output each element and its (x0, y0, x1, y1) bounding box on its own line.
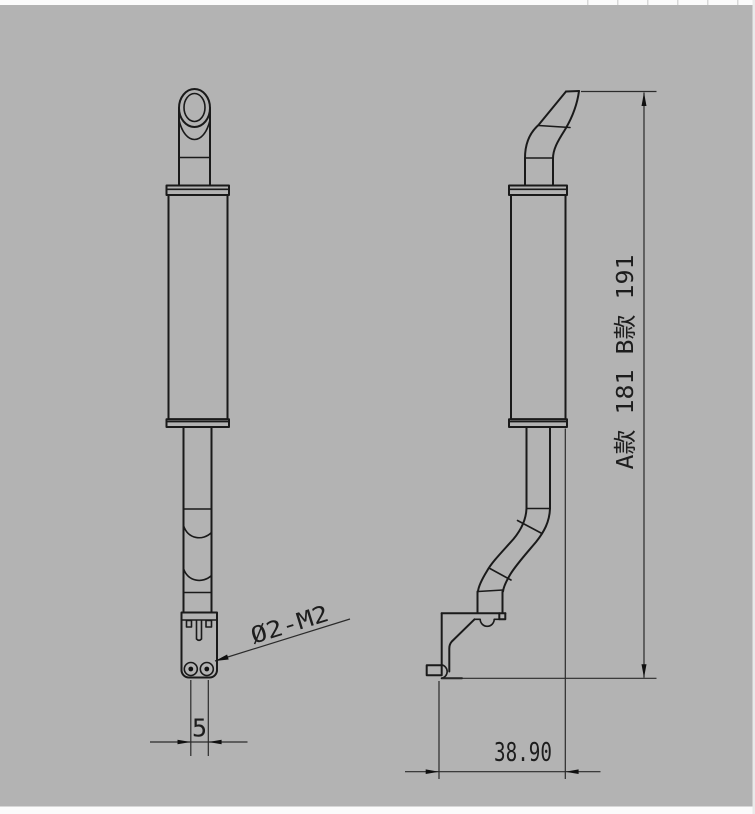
muffler-body (169, 195, 228, 419)
ruler-tick (677, 0, 679, 5)
pipe-stub (478, 592, 503, 614)
ruler-tick (647, 0, 649, 5)
thread-callout-label: Ø2-M2 (248, 601, 332, 650)
drawing-canvas: Ø2-M2 5 (0, 0, 755, 814)
bend-seam (489, 568, 511, 580)
upper-pipe (179, 108, 210, 185)
bend-seam (539, 126, 571, 128)
height-dim-label: A款 181 B款 191 (613, 255, 639, 470)
dim-arrow-up (642, 93, 647, 107)
dim-arrow-right (565, 769, 578, 774)
paper-edge-top (0, 0, 755, 5)
lower-pipe (184, 427, 212, 613)
paper-strip-bottom (0, 807, 755, 814)
front-view-dimensions: Ø2-M2 5 (150, 601, 350, 756)
side-view (427, 91, 579, 678)
dim-arrow-left (426, 769, 439, 774)
lower-pipe (527, 427, 551, 509)
ruler-tick (587, 0, 589, 5)
screw-left-center (188, 667, 193, 672)
outlet-opening-inner (184, 94, 205, 122)
depth-dim-label: 38.90 (494, 738, 552, 768)
dim-arrow-left (178, 740, 191, 745)
hole-spacing-dim: 5 (192, 714, 207, 743)
ruler-tick (707, 0, 709, 5)
bracket-inner-edge (449, 619, 474, 671)
bend-contour (184, 526, 212, 538)
dim-arrow-down (642, 664, 647, 678)
muffler-bottom-cap (509, 419, 567, 427)
ruler-tick (737, 0, 739, 5)
bracket-boss-bump (475, 619, 500, 626)
muffler-top-cap (509, 186, 567, 196)
mount-screw-head (427, 665, 442, 675)
ruler-tick (617, 0, 619, 5)
muffler-bottom-cap (167, 419, 230, 427)
muffler-top-cap (167, 186, 230, 196)
outlet-pipe-right-edge (553, 91, 579, 186)
bracket-slot (197, 621, 202, 641)
screw-right-center (204, 667, 209, 672)
dim-arrow-right (208, 740, 221, 745)
bracket-tabs (187, 621, 212, 628)
paper-strip-top (0, 0, 755, 5)
muffler-body (511, 195, 566, 419)
outlet-cut-edge (566, 91, 579, 92)
bend-seam (478, 590, 503, 592)
cad-drawing: Ø2-M2 5 (0, 0, 755, 814)
bend-contour (184, 569, 212, 581)
front-view (167, 89, 230, 678)
